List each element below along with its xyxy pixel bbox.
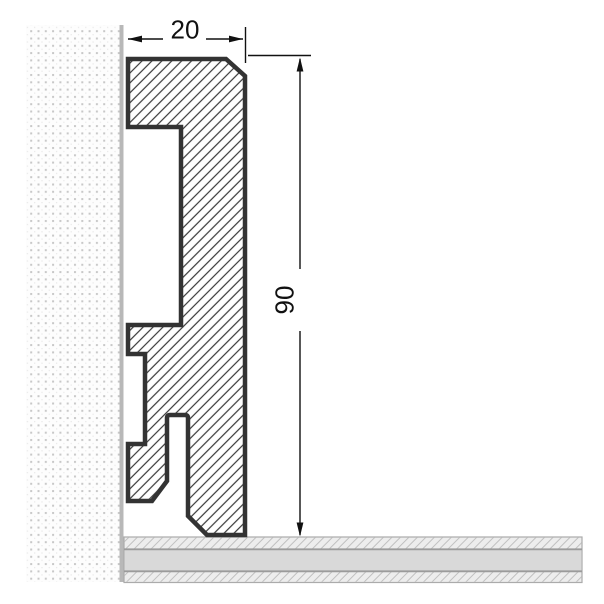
floor-top-hatch-strip <box>125 538 582 550</box>
width-dim-arrow-right <box>229 36 243 43</box>
wall-section <box>26 25 124 582</box>
floor-bottom-hatch-strip <box>125 572 582 582</box>
height-dim-arrow-up <box>297 58 304 72</box>
height-dimension: 90 <box>248 56 311 537</box>
width-dimension-label: 20 <box>171 15 200 45</box>
floor-middle-layer <box>125 550 582 571</box>
width-dim-arrow-left <box>128 36 142 43</box>
wall-surface-line <box>120 25 124 582</box>
height-dimension-label: 90 <box>270 286 300 315</box>
skirting-profile-outline <box>128 59 245 535</box>
technical-drawing: 20 90 <box>0 0 604 604</box>
width-dimension: 20 <box>128 15 246 64</box>
drawing-canvas: 20 90 <box>0 0 604 604</box>
floor-section <box>124 537 582 583</box>
wall-texture-area <box>26 25 120 582</box>
height-dim-arrow-down <box>297 523 304 537</box>
